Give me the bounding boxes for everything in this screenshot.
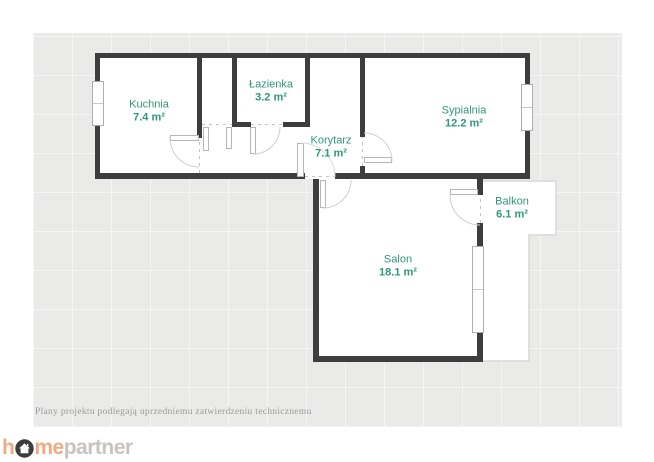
room-name: Sypialnia <box>442 105 487 118</box>
room-label-korytarz: Korytarz 7.1 m² <box>311 135 352 160</box>
room-area: 3.2 m² <box>249 91 293 104</box>
room-name: Salon <box>379 254 417 267</box>
room-name: Kuchnia <box>129 99 169 112</box>
room-area: 12.2 m² <box>442 117 487 130</box>
floorplan-page: Kuchnia 7.4 m² Łazienka 3.2 m² Korytarz … <box>0 0 654 462</box>
door-leaf-bedroom <box>364 157 392 163</box>
window-bedroom <box>521 84 533 131</box>
room-label-kuchnia: Kuchnia 7.4 m² <box>129 99 169 124</box>
room-area: 7.1 m² <box>311 147 352 160</box>
wall-bedroom-left <box>360 53 365 137</box>
wall-top <box>95 53 530 58</box>
wall-salon-bottom <box>313 356 483 362</box>
door-leaf-closet-left <box>203 127 209 151</box>
door-opening-balcony <box>477 195 483 223</box>
room-label-balkon: Balkon 6.1 m² <box>495 196 529 221</box>
door-leaf-balcony <box>450 189 478 195</box>
room-name: Balkon <box>495 196 529 209</box>
house-in-circle-icon <box>15 439 34 458</box>
room-label-lazienka: Łazienka 3.2 m² <box>249 79 293 104</box>
door-leaf-kitchen <box>170 135 199 141</box>
door-leaf-salon <box>320 180 326 208</box>
room-name: Łazienka <box>249 79 293 92</box>
wall-salon-left <box>313 173 319 362</box>
room-label-salon: Salon 18.1 m² <box>379 254 417 279</box>
wall-bedroom-left-stub <box>360 166 365 173</box>
door-opening-kitchen <box>197 138 202 173</box>
room-area: 7.4 m² <box>129 111 169 124</box>
brand-logo: h me partner <box>2 436 133 460</box>
logo-suffix: partner <box>64 436 133 460</box>
door-leaf-salon-corridor <box>297 143 304 177</box>
door-leaf-bathroom <box>250 127 256 154</box>
wall-bathroom-right <box>305 53 310 127</box>
window-kitchen <box>92 81 104 126</box>
logo-prefix: h <box>2 436 14 460</box>
disclaimer-text: Plany projektu podlegają uprzedniemu zat… <box>35 407 312 417</box>
room-area: 6.1 m² <box>495 208 529 221</box>
room-area: 18.1 m² <box>379 266 417 279</box>
window-salon <box>472 246 484 333</box>
logo-middle: me <box>34 436 63 460</box>
room-name: Korytarz <box>311 135 352 148</box>
wall-bathroom-left <box>232 53 237 127</box>
door-opening-salon <box>305 173 335 179</box>
room-label-sypialnia: Sypialnia 12.2 m² <box>442 105 487 130</box>
door-leaf-closet-right <box>226 127 232 149</box>
